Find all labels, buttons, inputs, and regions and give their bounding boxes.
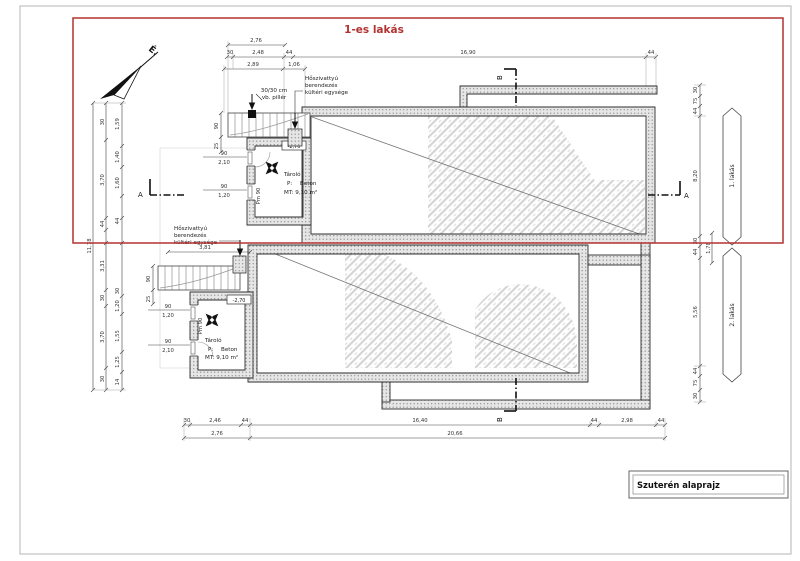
- heat-pump-unit: [233, 256, 246, 273]
- heat-pump-label-line1: Hőszivattyú: [174, 225, 207, 232]
- flat1-overlay-label: 1-es lakás: [344, 24, 404, 36]
- dim-label: 16,40: [412, 418, 428, 424]
- dim-label: 5,56: [693, 305, 699, 317]
- dim-label: 90: [221, 184, 228, 190]
- dim-label: 1,20: [162, 313, 174, 319]
- dim-label: 2,89: [247, 62, 259, 68]
- door-leaf: [248, 186, 252, 198]
- dim-label: 90: [146, 275, 152, 282]
- dim-label: 8,20: [693, 169, 699, 181]
- dim-label: 1,40: [115, 150, 121, 162]
- door-leaf: [248, 152, 252, 164]
- dim-extensions: [93, 103, 126, 390]
- dim-label: 25: [214, 143, 220, 150]
- dim-label: 90: [165, 339, 172, 345]
- section-a-label: A: [138, 191, 143, 199]
- bottom-connector-wall: [382, 382, 390, 402]
- dim-label: 44: [693, 107, 699, 114]
- section-b-label: B: [496, 417, 504, 422]
- dim-label: 1,59: [115, 118, 121, 130]
- drawing-page: É. 2,76 30 2,48 44 16,90 44 2,89 1,06 30…: [0, 0, 800, 561]
- dim-label: 2,46: [209, 418, 221, 424]
- upper-building: [302, 86, 657, 243]
- dim-label: 16,90: [460, 50, 476, 56]
- dim-label: 30: [184, 418, 191, 424]
- room-name: Tároló: [283, 171, 301, 178]
- floor-hatch-lower-1: [345, 250, 452, 368]
- dim-chain-left: [91, 101, 126, 392]
- door-leaf: [191, 307, 195, 319]
- dim-label: 1,55: [115, 330, 121, 342]
- flat1-label: 1. lakás: [729, 164, 736, 187]
- dim-label: 44: [693, 248, 699, 255]
- dim-label: 30: [100, 118, 106, 125]
- dim-label: 75: [693, 98, 699, 105]
- dim-label: 3,31: [100, 260, 106, 272]
- dim-label: 1,25: [115, 356, 121, 368]
- level-label: -2,70: [233, 298, 246, 304]
- dim-label: 2,76: [211, 431, 223, 437]
- dim-ticks: [182, 423, 667, 440]
- dim-label: 30: [693, 86, 699, 93]
- dim-label: 44: [658, 418, 665, 424]
- heat-pump-label-line2: berendezés: [305, 82, 338, 89]
- title-block: Szuterén alaprajz: [629, 471, 788, 498]
- dim-label: 44: [693, 367, 699, 374]
- room-p: P:: [287, 181, 292, 187]
- dim-label: 44: [100, 220, 106, 227]
- dim-ticks: [91, 101, 124, 392]
- dim-label: 30: [227, 50, 234, 56]
- dim-label: 44: [648, 50, 655, 56]
- heat-pump-label-line2: berendezés: [174, 232, 207, 239]
- dim-label: 44: [591, 418, 598, 424]
- north-arrow: É.: [100, 43, 161, 99]
- floor-hatch-upper-1: [428, 116, 601, 237]
- dim-label: 44: [242, 418, 249, 424]
- dim-label: 30: [100, 294, 106, 301]
- drawing-title: Szuterén alaprajz: [637, 480, 720, 490]
- room-p-value: Beton: [221, 347, 238, 353]
- flat-labels: 1. lakás 2. lakás: [723, 108, 741, 382]
- heat-pump-unit: [288, 129, 302, 146]
- dim-label: 2,48: [252, 50, 264, 56]
- heat-pump-label-line3: kültéri egysége: [305, 89, 349, 96]
- dim-label: 1,60: [115, 176, 121, 188]
- room-area: MT: 9,10 m²: [205, 354, 238, 361]
- dim-label: 2,10: [218, 160, 230, 166]
- north-label: É.: [146, 43, 161, 58]
- floor-plan-svg: É. 2,76 30 2,48 44 16,90 44 2,89 1,06 30…: [0, 0, 800, 561]
- heat-pump-label-line1: Hőszivattyú: [305, 75, 338, 82]
- dim-label: 30: [693, 392, 699, 399]
- dim-lines: [93, 103, 122, 390]
- dim-label: 90: [165, 304, 172, 310]
- room-name: Tároló: [204, 337, 222, 344]
- door-leaf: [191, 342, 195, 354]
- flat2-label: 2. lakás: [729, 303, 736, 326]
- north-arrow-head-open: [114, 66, 141, 99]
- right-boundary-wall: [641, 255, 650, 409]
- dim-label: 75: [693, 380, 699, 387]
- dim-label: 25: [146, 296, 152, 303]
- dim-label: 11,78: [87, 238, 93, 254]
- dim-label: 3,70: [100, 330, 106, 342]
- pillar-label-line1: 30/30 cm: [261, 88, 287, 94]
- room-p: P:: [208, 347, 213, 353]
- dim-label: 14: [115, 378, 121, 385]
- dim-label: 2,10: [162, 348, 174, 354]
- dim-label: 2,76: [250, 38, 262, 44]
- dim-label: 44: [115, 217, 121, 224]
- room-p-value: Beton: [300, 181, 317, 187]
- upper-parapet-wall: [460, 86, 657, 107]
- dim-label: 30: [115, 287, 121, 294]
- dim-label: 44: [286, 50, 293, 56]
- pillar-symbol: [248, 110, 256, 118]
- lower-building: [248, 243, 650, 409]
- dim-label: 90: [221, 151, 228, 157]
- dim-label: 2,98: [621, 418, 633, 424]
- room-area: MT: 9,10 m²: [284, 189, 317, 196]
- section-b-label: B: [496, 75, 504, 80]
- dim-label: 3,70: [100, 173, 106, 185]
- flue-symbol: [259, 155, 284, 180]
- dim-label: 30: [100, 375, 106, 382]
- dim-label: 1,06: [288, 62, 300, 68]
- dim-label: 90: [214, 122, 220, 129]
- section-marker-a-left: [150, 179, 184, 195]
- parapet-label: Pm 90: [256, 187, 262, 204]
- dim-label: 20,66: [447, 431, 463, 437]
- dim-lines: [184, 425, 665, 438]
- section-a-label: A: [684, 192, 689, 200]
- dim-label: 1,20: [218, 193, 230, 199]
- pillar-arrow-icon: [249, 94, 255, 110]
- parapet-label: Pm 90: [198, 317, 204, 334]
- dim-label: 1,20: [115, 299, 121, 311]
- pillar-label-line2: vb. pillér: [262, 94, 287, 101]
